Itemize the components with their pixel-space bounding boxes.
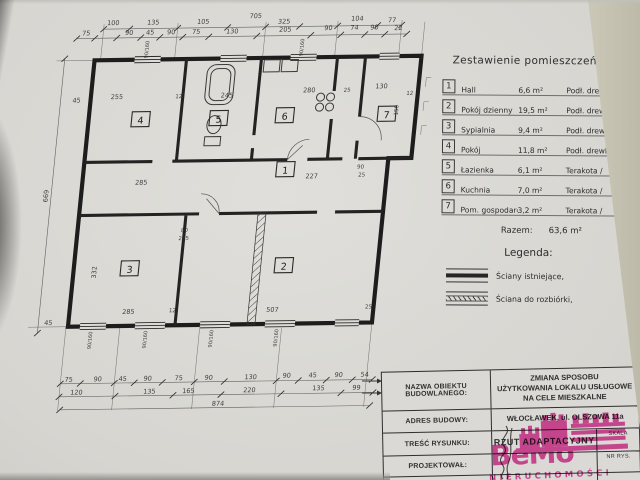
room-name: Kuchnia <box>461 185 518 194</box>
room-number: 4 <box>442 139 455 153</box>
dimension-label: 90 <box>334 371 343 379</box>
room-name: Sypialnia <box>461 125 518 134</box>
dimension-label: 165 <box>182 387 195 395</box>
room-area: 11,8 m² <box>518 146 566 155</box>
dimension-label: 80 <box>181 228 189 234</box>
dimension-label: 90/160 <box>208 330 216 348</box>
dimension-label: 100 <box>107 19 120 27</box>
room-number-label: 1 <box>282 166 289 177</box>
scan-edge-top <box>0 0 640 4</box>
room-number: 7 <box>442 199 455 213</box>
demolition-wall <box>247 213 266 324</box>
room-number: 2 <box>442 99 455 113</box>
room-number-label: 5 <box>215 115 222 126</box>
dimension-label: 12 <box>169 308 177 314</box>
scanned-floor-plan-page: 1001351057053251047775904590751302059074… <box>0 0 640 480</box>
dimension-label: 90 <box>143 375 152 383</box>
dimension-label: 45 <box>308 371 317 379</box>
dimension-label: 285 <box>135 179 148 187</box>
dimension-label: 90 <box>282 372 291 380</box>
dimension-label: 90 <box>357 165 365 171</box>
room-name: Pokój <box>461 145 518 154</box>
room-name: Łazienka <box>461 165 518 174</box>
room-name: Pokój dzienny <box>461 105 518 114</box>
object-name-label: NAZWA OBIEKTU BUDOWLANEGO: <box>382 370 492 410</box>
dimension-label: 669 <box>41 190 50 203</box>
room-area: 6,1 m² <box>518 166 566 175</box>
table-row: 7 Pom. gospodarcze 3,2 m² Terakota / <box>442 195 628 216</box>
designer-label: PROJEKTOWAŁ: <box>384 454 493 476</box>
legend-label: Ściany istniejące, <box>496 271 564 280</box>
room-area: 19,5 m² <box>518 106 566 115</box>
dimension-label: 507 <box>266 306 279 314</box>
dimension-label: 280 <box>303 86 316 94</box>
dimension-label: 45 <box>72 97 81 105</box>
dimension-label: 12 <box>406 91 414 97</box>
room-number-label: 2 <box>280 262 287 273</box>
dimension-label: 205 <box>279 26 292 34</box>
dimension-label: 104 <box>351 15 364 23</box>
dimension-label: 220 <box>243 386 256 394</box>
dimension-label: 227 <box>305 172 318 180</box>
dimension-label: 285 <box>122 308 135 316</box>
dimension-label: 22 <box>394 24 403 32</box>
dimension-label: 90 <box>167 28 176 36</box>
dimension-label: 135 <box>312 384 325 392</box>
legend: Legenda: Ściany istniejące, Ściana do ro… <box>446 246 636 315</box>
room-number: 1 <box>442 79 455 93</box>
dimension-label: 45 <box>44 319 53 327</box>
dimension-label: 874 <box>211 400 224 408</box>
total-value: 63,6 m² <box>549 226 582 236</box>
dimension-label: 90 <box>93 375 102 383</box>
dimension-label: 705 <box>249 12 262 20</box>
legend-title: Legenda: <box>504 247 636 260</box>
dimension-label: 74 <box>350 24 359 32</box>
dimension-label: 77 <box>388 16 397 24</box>
title-block-row: NAZWA OBIEKTU BUDOWLANEGO: ZMIANA SPOSOB… <box>382 367 639 410</box>
existing-wall-icon <box>446 268 488 282</box>
dimension-label: 75 <box>174 374 183 382</box>
dimension-label: 105 <box>197 18 210 26</box>
dimension-label: 45 <box>146 28 155 36</box>
dimension-label: 90/160 <box>142 331 150 349</box>
room-area: 7,0 m² <box>518 186 566 195</box>
legend-item: Ściany istniejące, <box>446 268 636 283</box>
dimension-label: 120 <box>70 389 83 397</box>
dimension-label: 90/160 <box>273 329 281 347</box>
scan-edge-bottom <box>0 472 390 480</box>
room-area: 9,4 m² <box>518 126 566 135</box>
watermark: BeMo NIERUCHOMOŚCI <box>484 408 640 480</box>
schedule-total: Razem: 63,6 m² <box>441 225 640 236</box>
room-number-label: 3 <box>126 265 133 276</box>
room-name: Pom. gospodarcze <box>461 205 518 214</box>
dimension-label: 25 <box>365 304 373 310</box>
room-number-label: 6 <box>281 112 288 123</box>
table-row: 5 Łazienka 6,1 m² Terakota / <box>442 155 628 176</box>
room-number: 5 <box>442 159 455 173</box>
total-label: Razem: <box>501 226 533 236</box>
dimension-label: 205 <box>178 236 190 242</box>
dimension-label: 332 <box>90 266 99 279</box>
room-name: Hall <box>461 85 518 94</box>
legend-item: Ściana do rozbiórki, <box>446 291 636 306</box>
revision-marks <box>421 78 432 135</box>
dimension-label: 45 <box>118 375 127 383</box>
dimension-label: 25 <box>343 88 351 94</box>
room-area: 3,2 m² <box>518 206 566 215</box>
drawing-title-label: TREŚĆ RYSUNKU: <box>383 431 492 455</box>
dimension-label: 90 <box>370 23 379 31</box>
dimension-label: 255 <box>110 93 123 101</box>
dimension-label: 75 <box>192 28 201 36</box>
dimension-label: 135 <box>143 388 156 396</box>
address-label: ADRES BUDOWY: <box>383 409 492 432</box>
room-number-label: 7 <box>383 110 390 121</box>
table-row: 4 Pokój 11,8 m² Podł. drewl. <box>442 135 628 156</box>
stove-icon <box>315 93 335 111</box>
dimension-label: 12 <box>175 94 183 100</box>
dimension-label: 90/160 <box>87 332 95 350</box>
dimension-label: 75 <box>64 376 73 384</box>
dimension-label: 25 <box>358 173 366 179</box>
table-row: 6 Kuchnia 7,0 m² Terakota / <box>442 175 628 196</box>
dimension-label: 130 <box>244 373 257 381</box>
dimension-label: 130 <box>226 27 239 35</box>
demolition-wall-icon <box>446 291 488 305</box>
legend-label: Ściana do rozbiórki, <box>496 294 573 304</box>
dimension-label: 75 <box>82 29 91 37</box>
dimension-label: 135 <box>147 18 160 26</box>
room-area: 6,6 m² <box>518 86 566 95</box>
object-name-value: ZMIANA SPOSOBU UŻYTKOWANIA LOKALU USŁUGO… <box>491 367 639 408</box>
room-number: 3 <box>442 119 455 133</box>
watermark-brand: BeMo <box>489 436 574 473</box>
dimension-label: 90 <box>204 374 213 382</box>
table-row: 3 Sypialnia 9,4 m² Podł. drewl. <box>442 115 628 136</box>
door-swings <box>199 116 383 214</box>
room-number-label: 4 <box>137 116 144 127</box>
room-number: 6 <box>442 179 455 193</box>
dimension-label: 245 <box>220 91 233 99</box>
dimension-label: 325 <box>278 18 291 26</box>
dimension-label: 90 <box>324 24 333 32</box>
dimension-label: 90 <box>125 29 134 37</box>
dimension-label: 130 <box>375 82 388 90</box>
